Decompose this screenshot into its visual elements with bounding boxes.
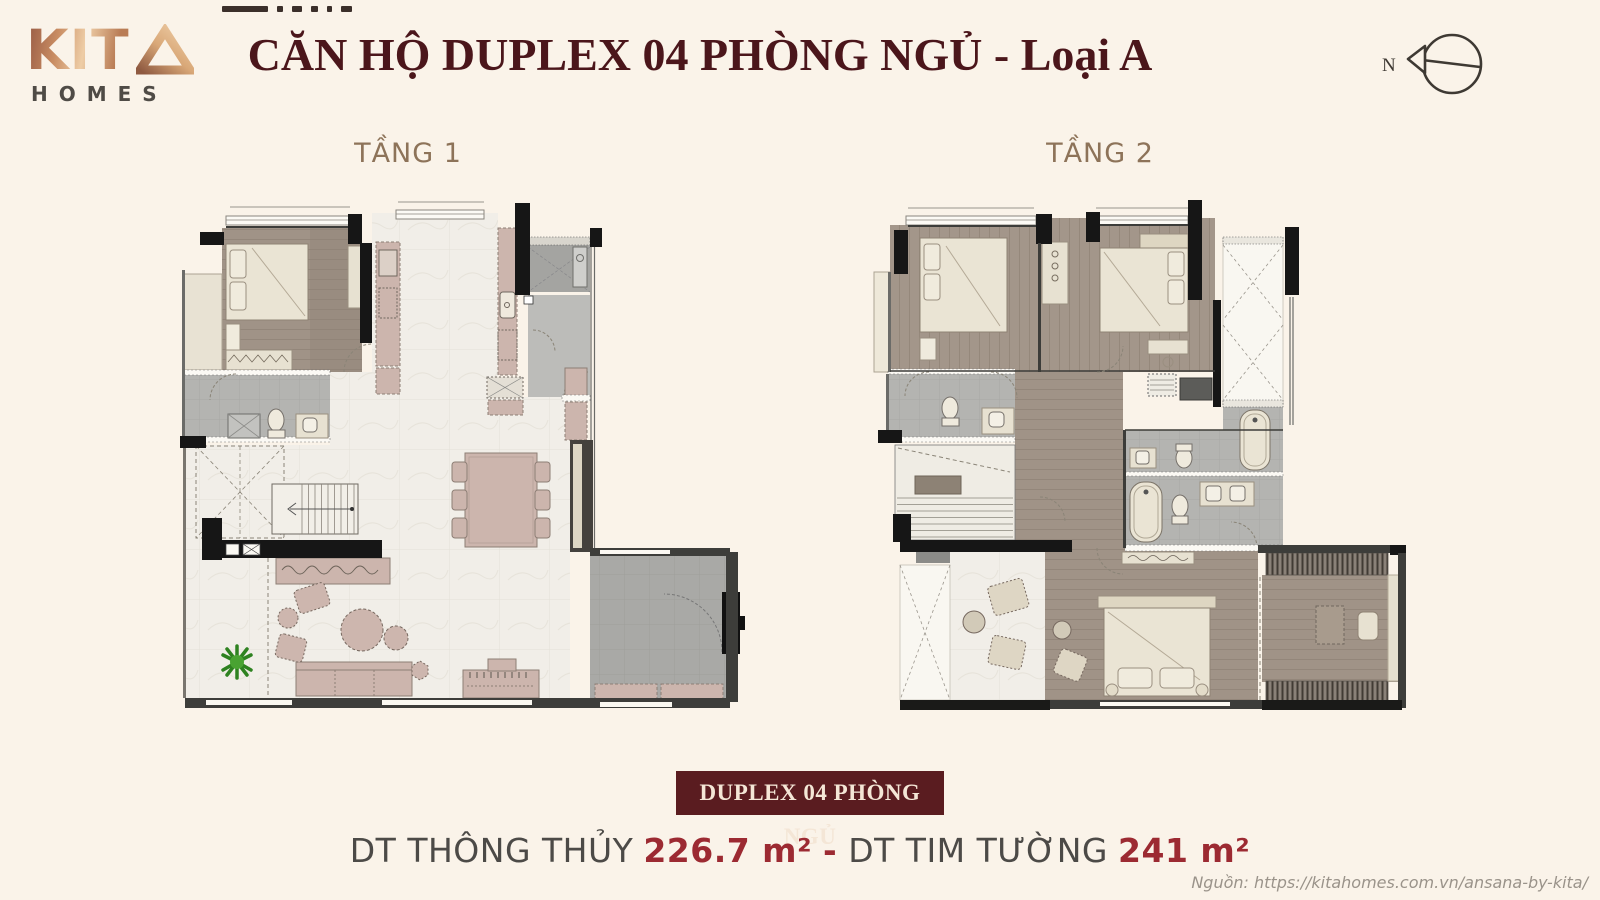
f1-bedroom-window xyxy=(226,216,350,225)
f1-side-balcony xyxy=(183,274,222,370)
f1-dining xyxy=(452,453,550,547)
f1-toilet xyxy=(268,409,284,431)
duplex-badge: DUPLEX 04 PHÒNG NGỦ xyxy=(676,771,944,815)
area-separator: - xyxy=(823,831,837,870)
compass-n-label: N xyxy=(1382,55,1396,76)
kita-triangle-icon xyxy=(136,24,194,76)
floor-1-label: TẦNG 1 xyxy=(288,138,528,169)
floor-plan-1 xyxy=(180,195,745,715)
area-value-1: 226.7 m² xyxy=(643,831,812,870)
f2-desk-chair xyxy=(1358,612,1378,640)
area-value-2: 241 m² xyxy=(1118,831,1250,870)
source-credit: Nguồn: https://kitahomes.com.vn/ansana-b… xyxy=(1000,873,1588,892)
floor-2-label: TẦNG 2 xyxy=(980,138,1220,169)
floor-plan-2 xyxy=(865,195,1410,715)
f1-sink xyxy=(500,292,515,318)
f1-entrance-floor xyxy=(590,552,728,700)
compass-icon: N xyxy=(1368,33,1498,103)
area-info: DT THÔNG THỦY226.7 m²-DT TIM TƯỜNG241 m² xyxy=(0,831,1600,870)
f1-dining-table xyxy=(465,453,537,547)
f2-shaft xyxy=(1180,378,1212,400)
f1-wardrobe xyxy=(226,350,292,370)
kita-homes-logo: KIT HOMES xyxy=(26,24,196,106)
logo-kit-text: KIT xyxy=(26,24,130,76)
f1-console xyxy=(276,558,390,584)
f2-louver-top xyxy=(1266,553,1388,575)
f1-sofa xyxy=(296,662,412,696)
f2-toilet2 xyxy=(942,397,958,419)
f2-desk xyxy=(1316,606,1344,644)
page: KIT HOMES CĂN HỘ DUPLEX 04 PHÒNG NGỦ - L… xyxy=(0,0,1600,900)
f1-dresser xyxy=(348,246,361,308)
logo-homes-text: HOMES xyxy=(26,82,196,106)
page-title: CĂN HỘ DUPLEX 04 PHÒNG NGỦ - Loại A xyxy=(200,28,1200,81)
f2-toilet-master xyxy=(1172,495,1188,517)
f1-hall-window xyxy=(396,210,484,219)
f2-hall-floor xyxy=(1015,372,1123,548)
cropped-text-artifact xyxy=(222,4,352,14)
f1-tv-console xyxy=(463,670,539,698)
f1-washer xyxy=(573,247,587,287)
f1-coffee-table xyxy=(341,609,383,651)
f2-void-top xyxy=(1223,238,1283,405)
f2-louver-bottom xyxy=(1266,681,1388,702)
area-label-1: DT THÔNG THỦY xyxy=(350,831,634,870)
area-label-2: DT TIM TƯỜNG xyxy=(848,831,1108,870)
f2-side-balcony xyxy=(874,272,890,372)
